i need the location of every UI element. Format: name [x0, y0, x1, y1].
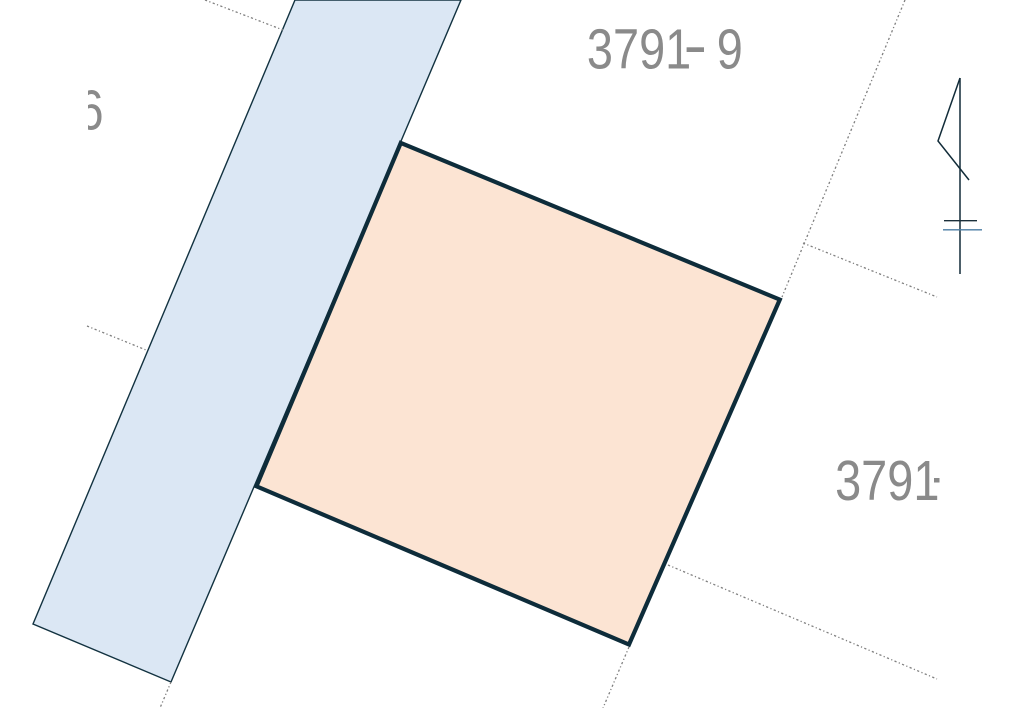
svg-text:9: 9	[717, 18, 743, 81]
svg-text:3791: 3791	[587, 18, 691, 81]
svg-text:3791: 3791	[835, 450, 939, 513]
svg-text:6: 6	[78, 79, 104, 142]
